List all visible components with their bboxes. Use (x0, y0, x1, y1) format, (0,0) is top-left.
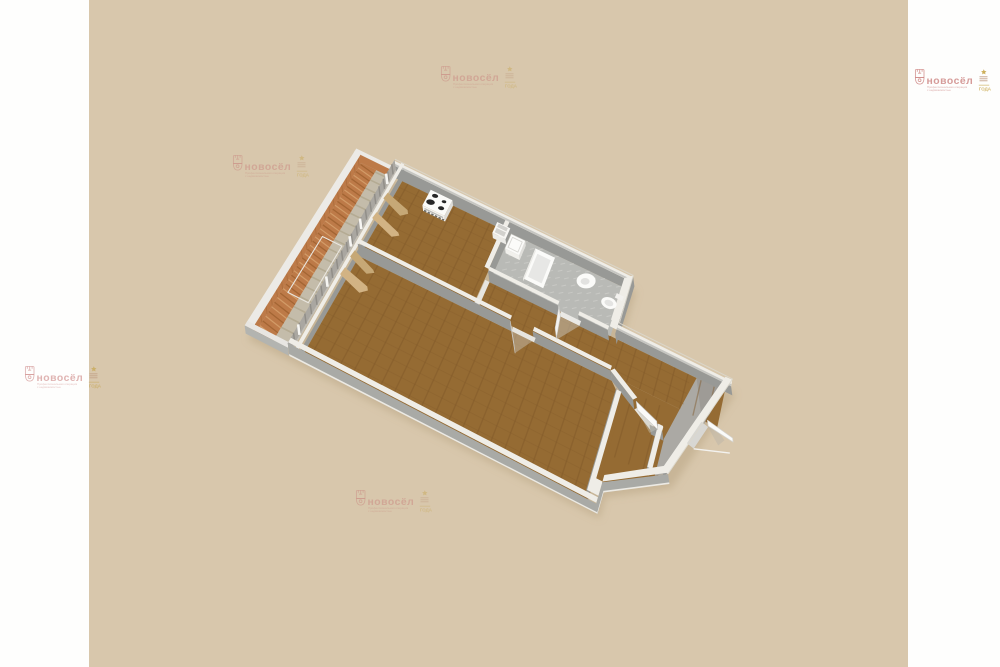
svg-text:с недвижимостью: с недвижимостью (453, 85, 478, 89)
svg-text:с недвижимостью: с недвижимостью (37, 385, 62, 389)
svg-text:с недвижимостью: с недвижимостью (368, 509, 393, 513)
svg-text:ГОДА: ГОДА (505, 84, 518, 89)
svg-text:с недвижимостью: с недвижимостью (245, 174, 270, 178)
svg-text:с недвижимостью: с недвижимостью (927, 88, 952, 92)
svg-text:ГОДА: ГОДА (420, 508, 433, 513)
svg-text:ГОДА: ГОДА (297, 173, 310, 178)
svg-text:ГОДА: ГОДА (89, 384, 102, 389)
svg-text:ГОДА: ГОДА (979, 87, 992, 92)
